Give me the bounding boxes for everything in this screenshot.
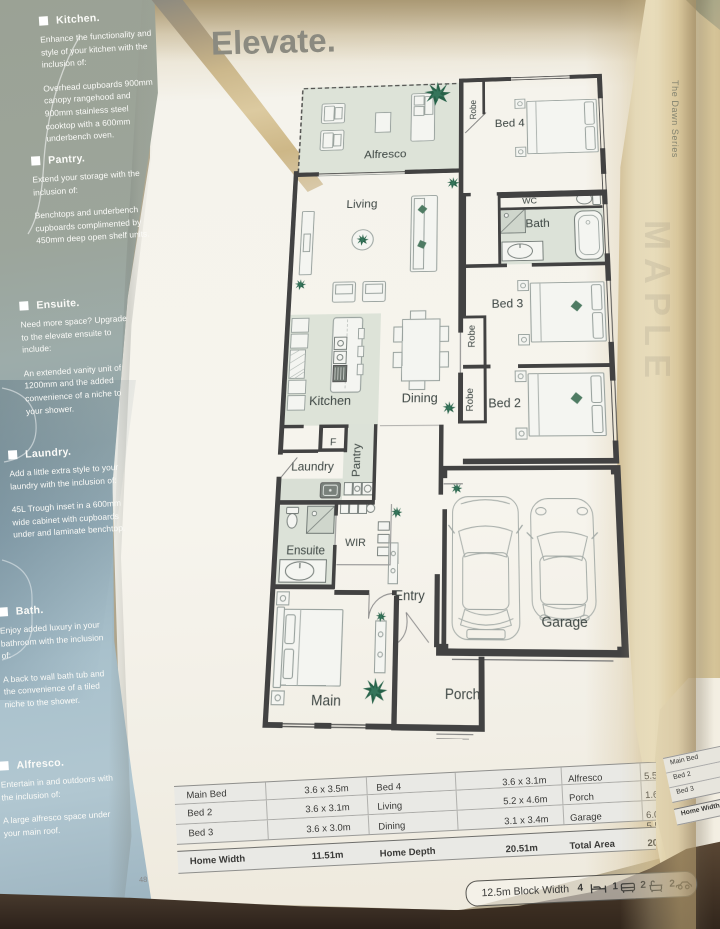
svg-text:Robe: Robe (464, 387, 475, 411)
svg-text:Alfresco: Alfresco (364, 148, 407, 161)
svg-text:Garage: Garage (541, 614, 588, 631)
svg-text:Porch: Porch (445, 688, 480, 704)
svg-text:Dining: Dining (402, 391, 438, 406)
svg-text:Living: Living (346, 198, 378, 211)
svg-text:Ensuite: Ensuite (286, 544, 325, 557)
svg-text:Laundry: Laundry (291, 461, 334, 475)
svg-text:Robe: Robe (468, 99, 478, 119)
svg-text:Bed 3: Bed 3 (492, 298, 524, 311)
svg-text:Bath: Bath (525, 218, 550, 230)
svg-text:WIR: WIR (345, 536, 366, 549)
svg-text:Pantry: Pantry (350, 443, 363, 477)
svg-text:Robe: Robe (466, 324, 477, 347)
svg-text:Kitchen: Kitchen (309, 394, 352, 409)
svg-text:Bed 2: Bed 2 (488, 397, 521, 411)
svg-text:F: F (330, 436, 337, 448)
svg-text:Bed 4: Bed 4 (495, 118, 525, 130)
svg-text:Main: Main (311, 692, 342, 709)
